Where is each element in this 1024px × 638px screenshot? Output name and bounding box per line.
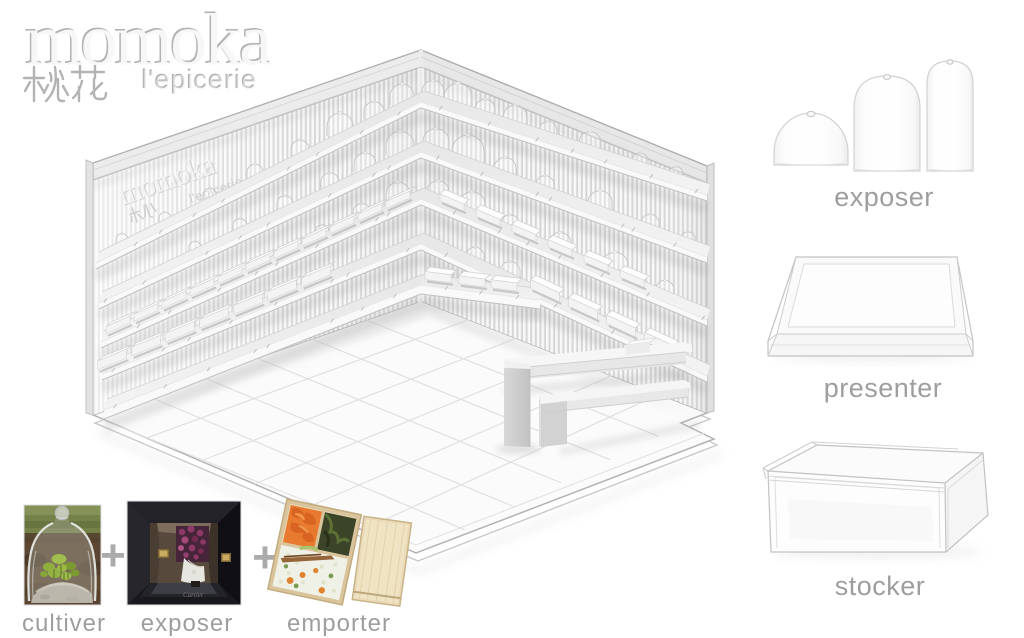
svg-text:presenter: presenter <box>824 373 943 403</box>
svg-text:stocker: stocker <box>835 571 926 601</box>
svg-text:exposer: exposer <box>141 610 233 637</box>
svg-text:+: + <box>100 531 126 580</box>
svg-text:Cartier: Cartier <box>183 591 204 599</box>
svg-text:cultiver: cultiver <box>22 610 106 637</box>
svg-text:exposer: exposer <box>834 182 934 212</box>
svg-text:emporter: emporter <box>287 610 391 637</box>
svg-text:l'epicerie: l'epicerie <box>142 65 258 95</box>
